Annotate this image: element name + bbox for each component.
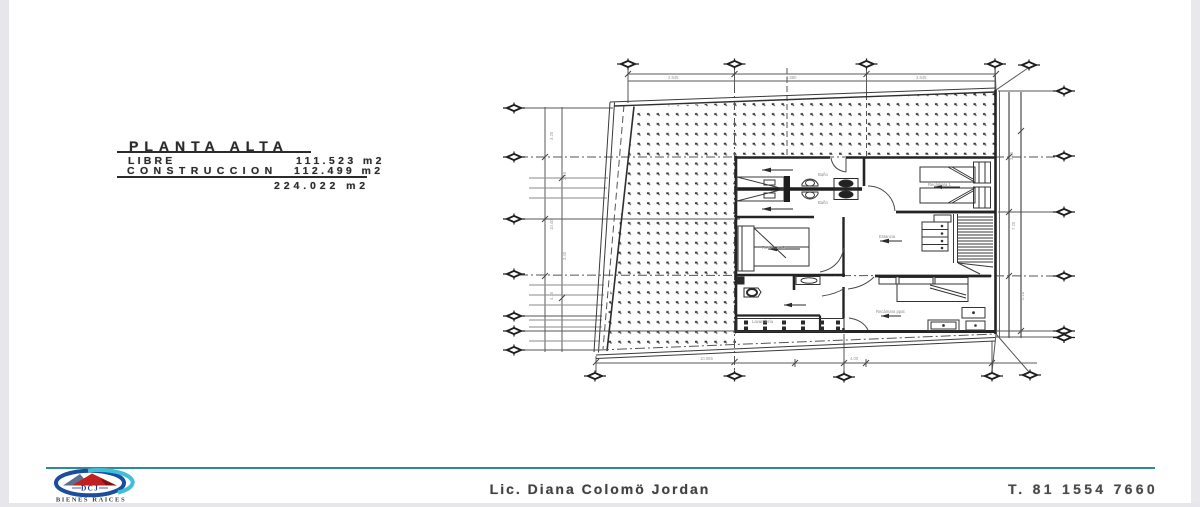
svg-text:2.545: 2.545 <box>668 75 679 80</box>
svg-text:3.880: 3.880 <box>786 75 797 80</box>
svg-text:Recámara ppal.: Recámara ppal. <box>876 309 906 314</box>
svg-text:3.545: 3.545 <box>916 75 927 80</box>
svg-text:Estancia: Estancia <box>879 234 896 239</box>
svg-text:BIENES RAICES: BIENES RAICES <box>56 497 126 504</box>
svg-text:4.00: 4.00 <box>850 356 859 361</box>
svg-text:10.065: 10.065 <box>700 356 713 361</box>
svg-text:Lavandería: Lavandería <box>752 319 774 324</box>
svg-text:3.25: 3.25 <box>549 131 554 140</box>
svg-text:7.20: 7.20 <box>1011 221 1016 230</box>
svg-text:Recámara 1: Recámara 1 <box>928 182 951 187</box>
svg-text:Recámara 2: Recámara 2 <box>762 245 785 250</box>
svg-text:Baño: Baño <box>818 200 828 205</box>
svg-text:3.40: 3.40 <box>562 251 567 260</box>
svg-text:4.15: 4.15 <box>549 291 554 300</box>
svg-text:4.18: 4.18 <box>1020 291 1025 300</box>
svg-text:10.40: 10.40 <box>549 219 554 230</box>
svg-text:Baño: Baño <box>818 172 828 177</box>
